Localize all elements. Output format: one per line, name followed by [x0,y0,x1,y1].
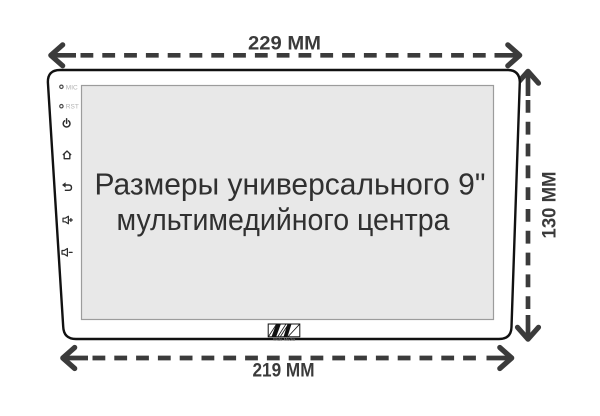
svg-text:130 MM: 130 MM [539,172,561,239]
svg-text:MIC: MIC [66,84,78,91]
svg-text:219 MM: 219 MM [253,360,315,382]
svg-text:229 MM: 229 MM [248,33,321,55]
svg-text:Wide Media: Wide Media [273,337,296,342]
svg-text:мультимедийного центра: мультимедийного центра [117,203,450,237]
svg-text:RST: RST [66,104,79,111]
svg-text:Размеры универсального 9": Размеры универсального 9" [95,167,486,201]
